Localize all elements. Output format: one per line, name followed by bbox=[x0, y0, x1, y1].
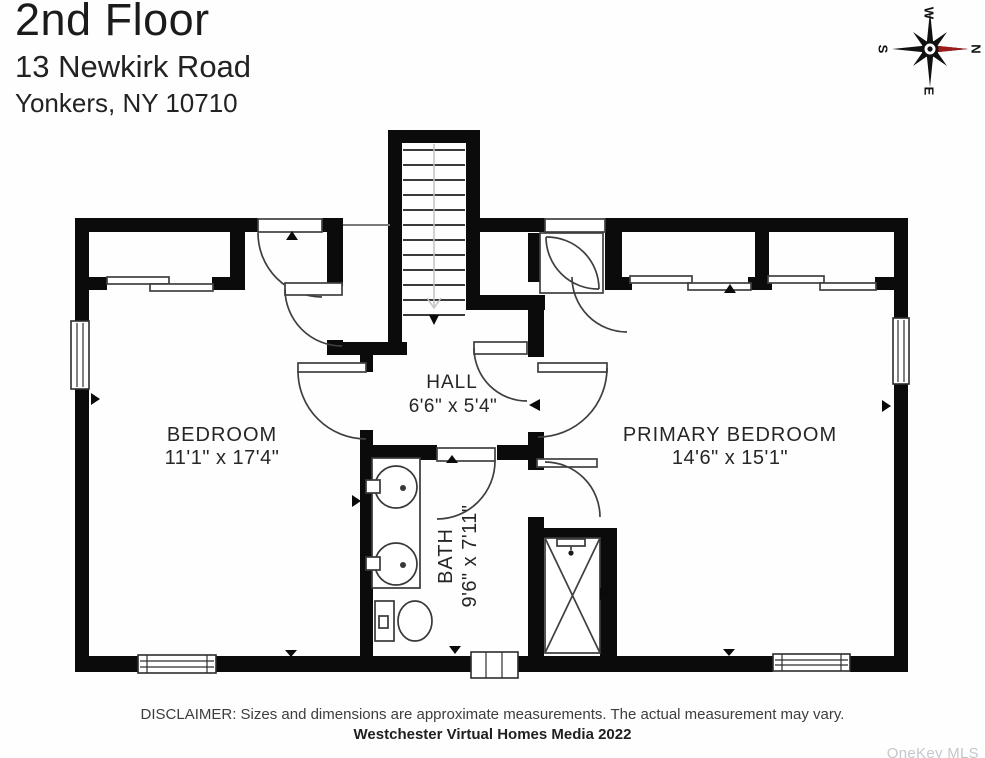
compass-west-label: W bbox=[922, 7, 937, 20]
hall-dimensions: 6'6" x 5'4" bbox=[409, 396, 498, 417]
window bbox=[71, 321, 89, 389]
toilet-icon bbox=[375, 601, 432, 641]
bedroom-dimensions: 11'1" x 17'4" bbox=[165, 447, 280, 469]
stairs-down-arrow-icon bbox=[429, 315, 439, 325]
bath-label: BATH bbox=[435, 528, 457, 584]
door-hall-bedroom bbox=[298, 363, 366, 439]
bath-dimensions: 9'6" x 7'11" bbox=[459, 504, 481, 607]
credit-text: Westchester Virtual Homes Media 2022 bbox=[0, 726, 985, 743]
compass-east-label: E bbox=[922, 87, 937, 96]
hall-label: HALL bbox=[426, 372, 478, 393]
floor-plan-page: 2nd Floor 13 Newkirk Road Yonkers, NY 10… bbox=[0, 0, 985, 758]
stairs bbox=[403, 144, 465, 325]
footer: DISCLAIMER: Sizes and dimensions are app… bbox=[0, 706, 985, 743]
compass-rose-icon: W N E S bbox=[876, 7, 984, 96]
window bbox=[471, 652, 518, 678]
door-hall-primary bbox=[538, 363, 607, 437]
primary-bedroom-label: PRIMARY BEDROOM bbox=[623, 424, 837, 446]
bedroom-label: BEDROOM bbox=[167, 424, 277, 446]
window bbox=[138, 655, 216, 673]
mls-watermark: OneKey MLS bbox=[887, 745, 979, 758]
room-labels: BEDROOM 11'1" x 17'4" HALL 6'6" x 5'4" P… bbox=[165, 372, 838, 608]
window bbox=[893, 318, 909, 384]
disclaimer-text: DISCLAIMER: Sizes and dimensions are app… bbox=[0, 706, 985, 723]
shower-stall bbox=[545, 538, 600, 653]
bath-fixtures bbox=[366, 458, 432, 641]
compass-north-label: N bbox=[969, 44, 984, 53]
primary-bedroom-dimensions: 14'6" x 15'1" bbox=[672, 447, 788, 469]
doors bbox=[258, 219, 627, 519]
windows bbox=[71, 318, 909, 678]
compass-south-label: S bbox=[876, 45, 891, 54]
door-primary-shower-area bbox=[537, 459, 600, 517]
door-bedroom-closet bbox=[285, 283, 342, 346]
floor-plan-drawing: BEDROOM 11'1" x 17'4" HALL 6'6" x 5'4" P… bbox=[0, 0, 985, 758]
door-landing-hall bbox=[474, 342, 527, 401]
window bbox=[773, 654, 850, 671]
